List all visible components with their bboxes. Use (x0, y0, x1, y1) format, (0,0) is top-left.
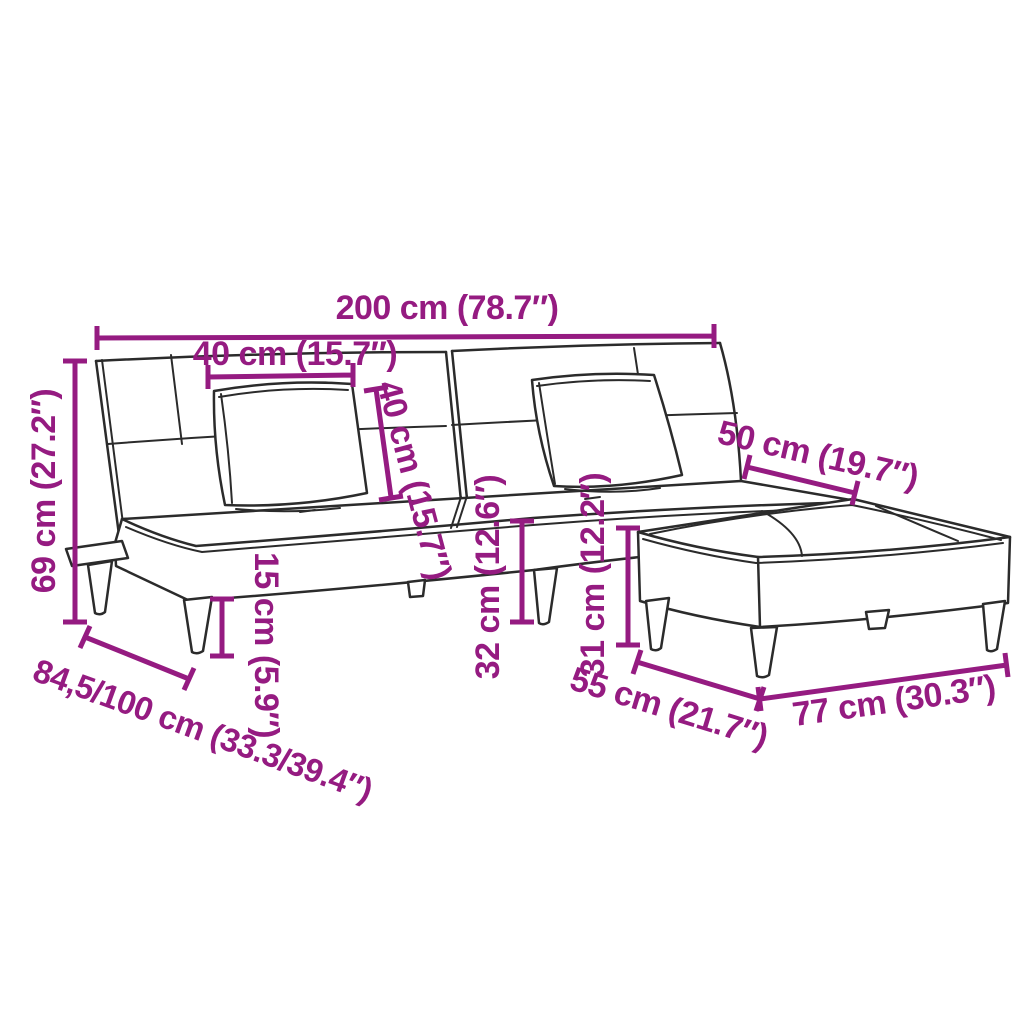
dimension-label-ottoman-height: 31 cm (12.2″) (576, 473, 610, 677)
sofa-line-drawing (0, 0, 1024, 1024)
dimension-label-total-width: 200 cm (78.7″) (336, 291, 559, 325)
ottoman (638, 499, 1010, 677)
product-dimension-diagram: 200 cm (78.7″) 40 cm (15.7″) 40 cm (15.7… (0, 0, 1024, 1024)
dimension-line-leg-height (210, 599, 234, 656)
dimension-label-leg-height: 15 cm (5.9″) (249, 552, 283, 738)
dimension-line-total-width (97, 324, 714, 350)
dimension-label-seat-height: 32 cm (12.6″) (471, 475, 505, 679)
dimension-label-total-height: 69 cm (27.2″) (27, 389, 61, 593)
dimension-label-pillow-width: 40 cm (15.7″) (193, 337, 397, 371)
dimension-line-total-height (63, 361, 87, 622)
